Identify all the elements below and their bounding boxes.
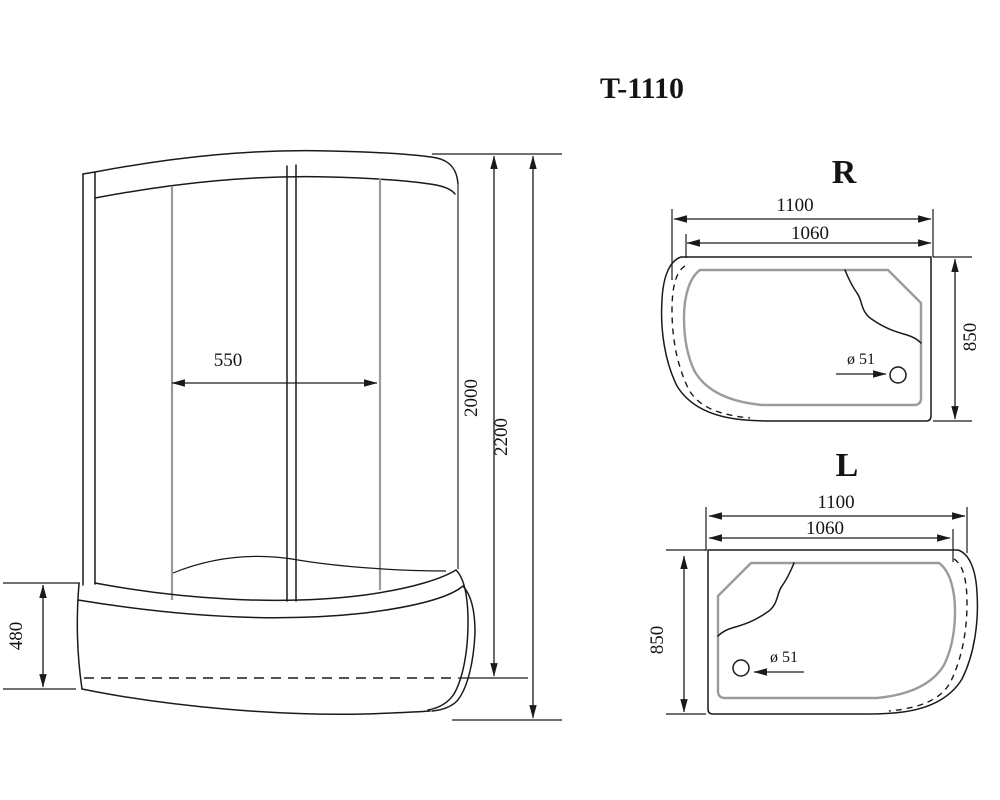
- view-label-r: R: [832, 154, 857, 191]
- tray-rim-bottom-curve: [78, 586, 463, 618]
- roof-inner-curve: [95, 177, 455, 198]
- dim-door-width: 550: [214, 350, 243, 371]
- view-label-l: L: [836, 447, 859, 484]
- left-wall-cap-line: [83, 172, 95, 174]
- tray-bulge-inner-curve: [428, 570, 468, 710]
- basin-rim-arc: [173, 556, 446, 573]
- drawing-title: T-1110: [600, 72, 684, 105]
- tray-outline-l: [708, 550, 977, 714]
- dim-l-depth: 850: [647, 626, 668, 655]
- technical-drawing: T-1110 550 2000 2200: [0, 0, 1000, 800]
- front-elevation-view: 550 2000 2200 480: [3, 151, 562, 720]
- top-view-left: L 1100 1060 850 ø 51: [647, 447, 977, 714]
- apron-bottom-curve: [82, 689, 430, 714]
- top-view-right: R 1100 1060 850 ø 51: [662, 154, 981, 421]
- dim-l-inner-width: 1060: [806, 518, 844, 539]
- dim-r-depth: 850: [960, 323, 981, 352]
- dim-cabin-height: 2000: [461, 379, 482, 417]
- drawing-canvas: T-1110 550 2000 2200: [0, 0, 1000, 800]
- dim-r-overall-width: 1100: [776, 195, 813, 216]
- dim-tray-height: 480: [6, 622, 27, 651]
- roof-outer-curve: [95, 151, 458, 184]
- drain-label-r: ø 51: [847, 351, 875, 368]
- drain-label-l: ø 51: [770, 649, 798, 666]
- tray-bulge-outer-curve: [432, 586, 475, 711]
- dim-l-overall-width: 1100: [817, 492, 854, 513]
- tray-rim-top-curve: [95, 570, 456, 600]
- dim-r-inner-width: 1060: [791, 223, 829, 244]
- tray-outline-r: [662, 257, 931, 421]
- dim-total-height: 2200: [491, 418, 512, 456]
